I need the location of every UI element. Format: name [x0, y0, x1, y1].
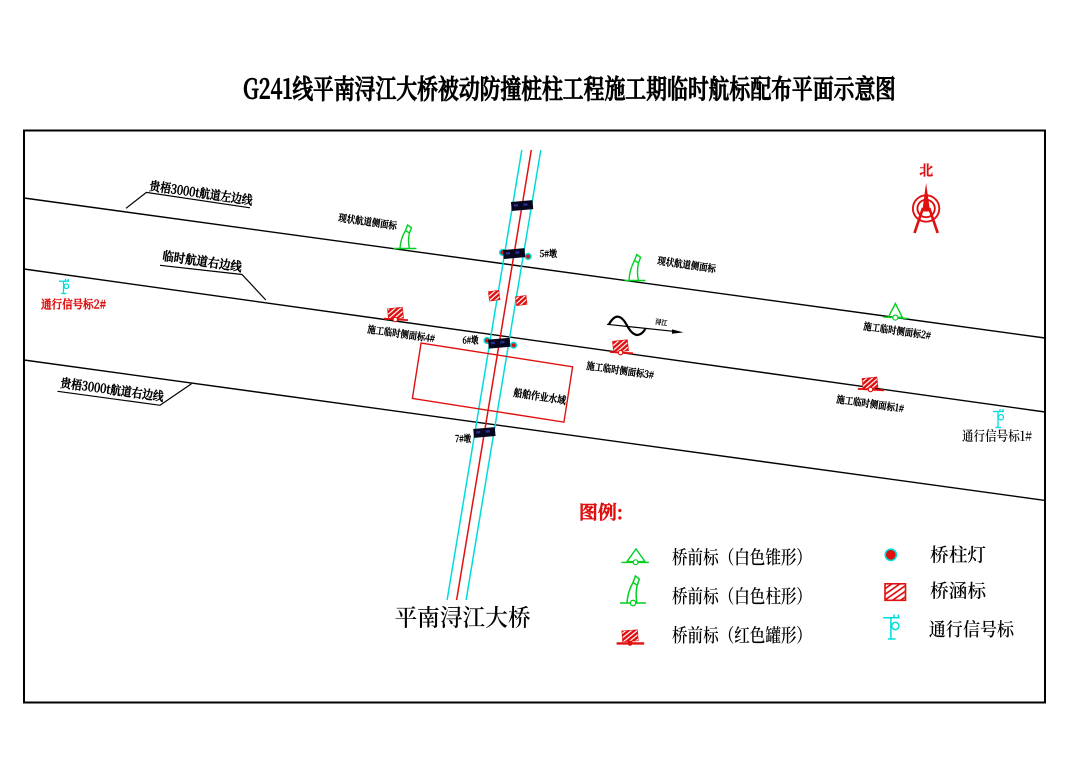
- svg-text:贵梧3000t航道左边线: 贵梧3000t航道左边线: [148, 176, 255, 209]
- svg-text:施工临时侧面标1#: 施工临时侧面标1#: [835, 391, 905, 416]
- svg-text:桥柱灯: 桥柱灯: [930, 541, 986, 568]
- svg-text:平南浔江大桥: 平南浔江大桥: [395, 598, 531, 633]
- svg-text:桥前标（白色锥形）: 桥前标（白色锥形）: [672, 543, 812, 570]
- svg-text:施工临时侧面标3#: 施工临时侧面标3#: [585, 357, 655, 382]
- svg-text:桥前标（红色罐形）: 桥前标（红色罐形）: [672, 621, 812, 648]
- svg-text:7#墩: 7#墩: [455, 431, 471, 445]
- svg-text:桥涵标: 桥涵标: [930, 577, 986, 604]
- svg-text:浔江: 浔江: [655, 317, 669, 329]
- svg-text:桥前标（白色柱形）: 桥前标（白色柱形）: [672, 582, 812, 609]
- svg-text:临时航道右边线: 临时航道右边线: [161, 246, 243, 275]
- svg-text:通行信号标1#: 通行信号标1#: [962, 426, 1032, 446]
- svg-text:现状航道侧面标: 现状航道侧面标: [657, 252, 718, 275]
- svg-text:通行信号标: 通行信号标: [929, 615, 1014, 642]
- svg-text:通行信号标2#: 通行信号标2#: [40, 296, 107, 313]
- svg-text:施工临时侧面标4#: 施工临时侧面标4#: [366, 321, 436, 346]
- svg-text:现状航道侧面标: 现状航道侧面标: [338, 209, 399, 232]
- svg-text:北: 北: [919, 160, 933, 181]
- svg-text:船舶作业水域: 船舶作业水域: [512, 385, 568, 408]
- svg-text:图例:: 图例:: [579, 498, 623, 525]
- svg-text:5#墩: 5#墩: [540, 246, 558, 260]
- svg-text:G241线平南浔江大桥被动防撞桩柱工程施工期临时航标配布平面: G241线平南浔江大桥被动防撞桩柱工程施工期临时航标配布平面示意图: [243, 68, 896, 107]
- svg-text:6#墩: 6#墩: [463, 333, 479, 347]
